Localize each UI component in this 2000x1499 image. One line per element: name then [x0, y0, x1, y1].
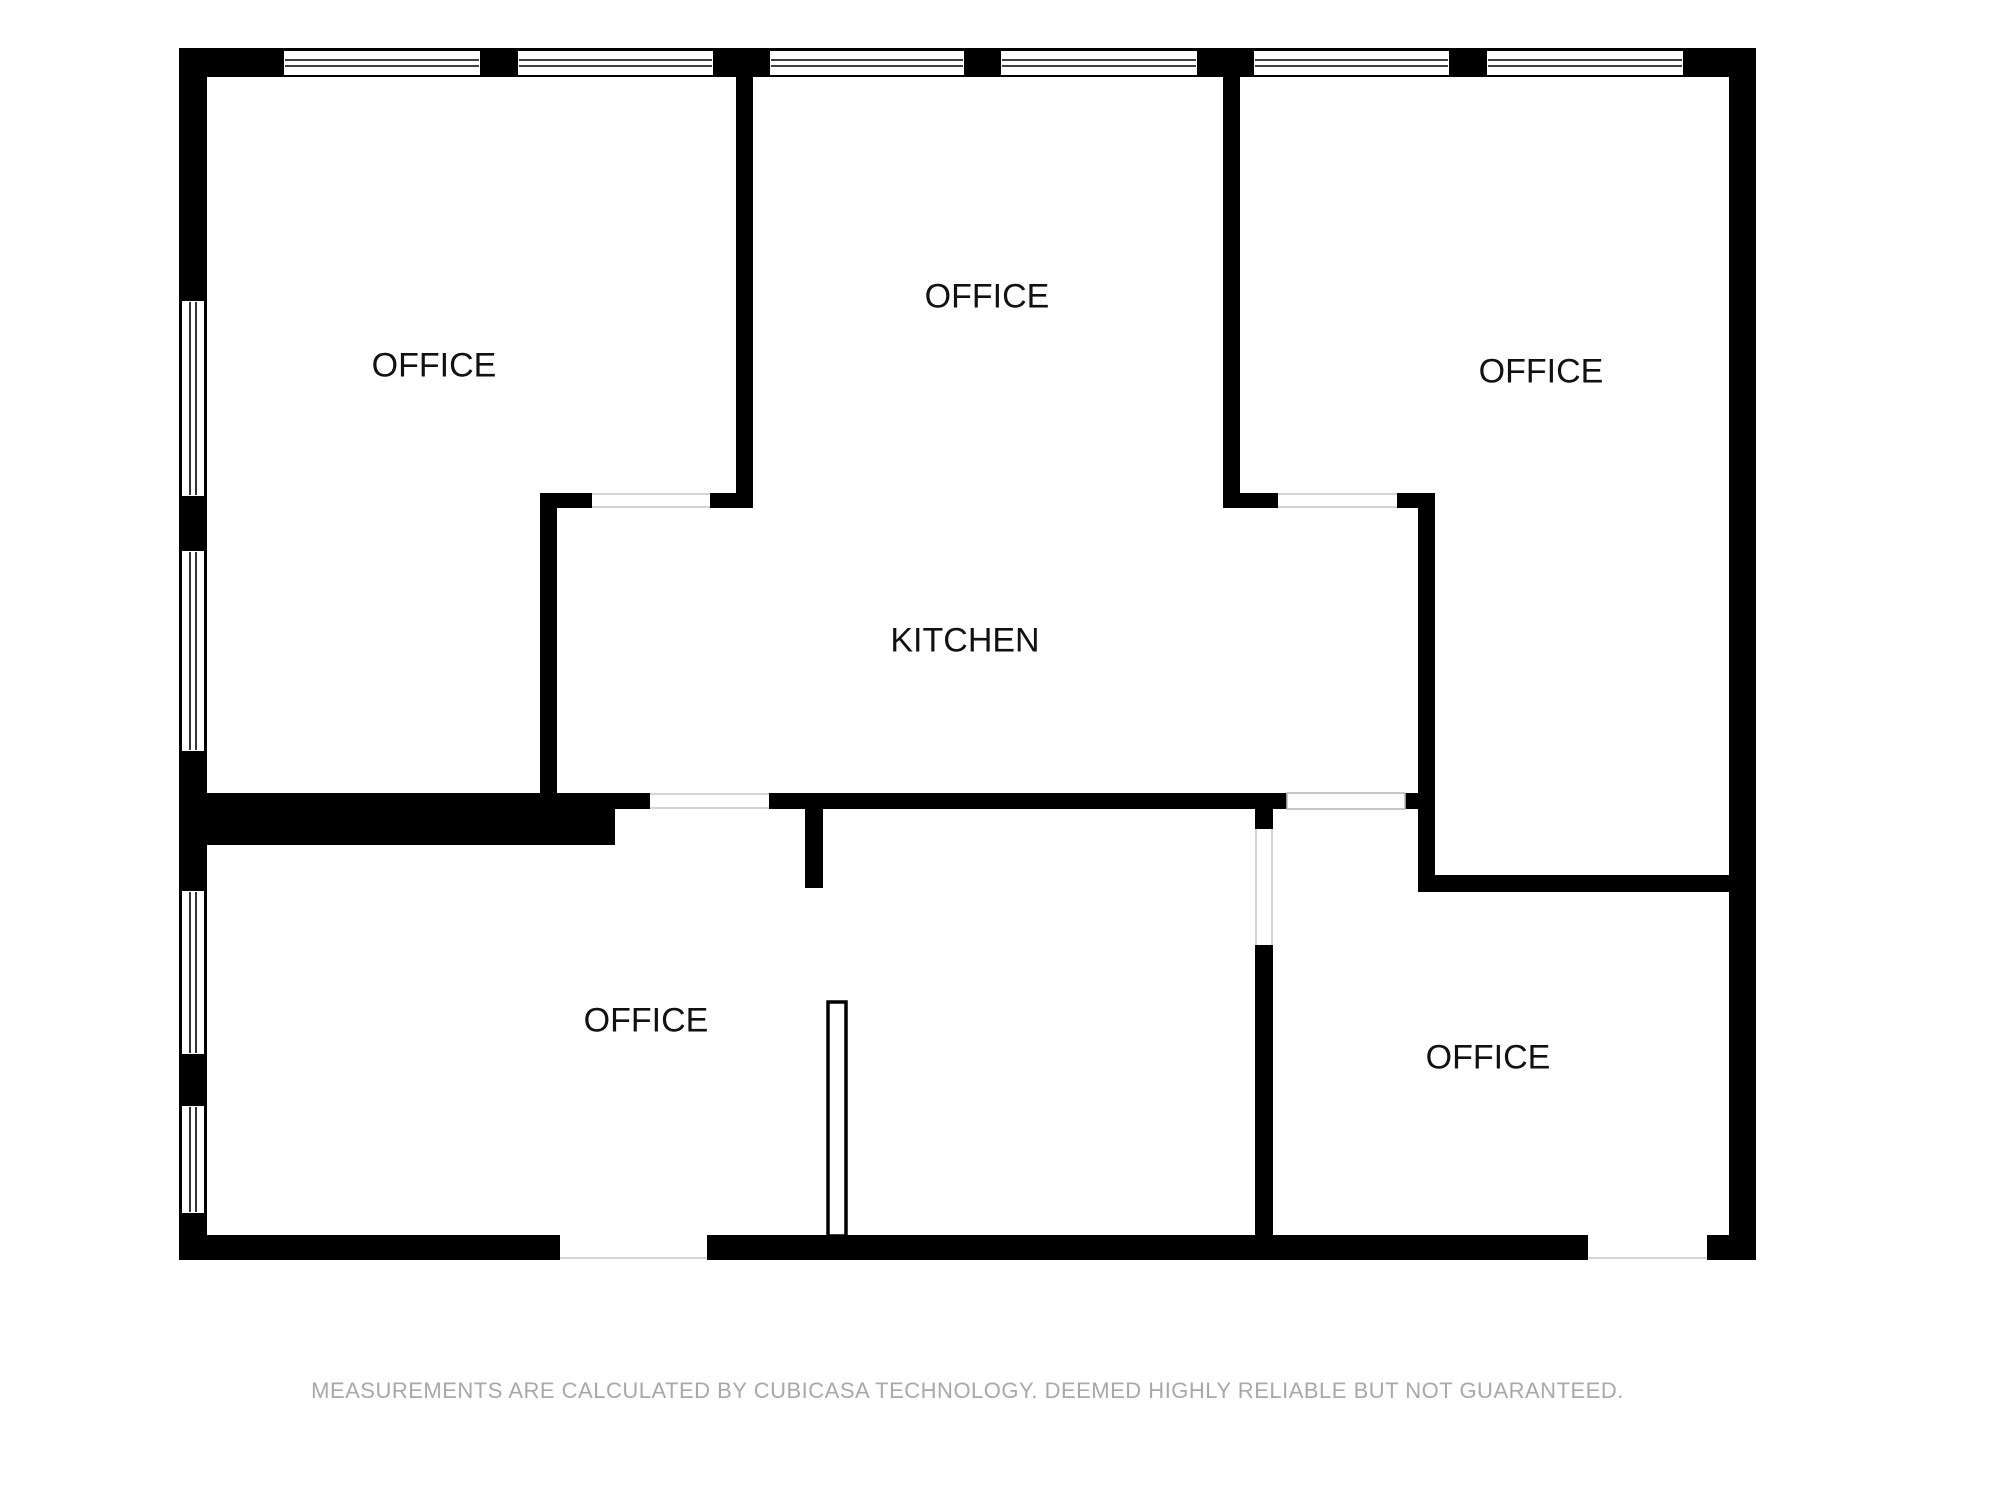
room-label-office-bottom-right: OFFICE	[1426, 1039, 1551, 1078]
window-icon	[283, 50, 481, 76]
wall-divider-office2-office3	[1223, 77, 1240, 508]
interior-window-icon	[1287, 793, 1405, 809]
wall-kitchen-right	[1418, 493, 1435, 892]
room-label-office-top-left: OFFICE	[372, 347, 497, 386]
room-label-office-bottom-left: OFFICE	[584, 1002, 709, 1041]
room-label-office-top-middle: OFFICE	[925, 278, 1050, 317]
door-opening-icon	[592, 493, 710, 508]
window-icon	[181, 300, 205, 497]
window-icon	[181, 1105, 205, 1214]
door-opening-icon	[1278, 493, 1397, 508]
wall-kitchen-bottom-corner	[1405, 793, 1435, 809]
wall-bottom	[179, 1235, 1756, 1260]
disclaimer-text: MEASUREMENTS ARE CALCULATED BY CUBICASA …	[179, 1378, 1756, 1404]
wall-thick-band-left	[179, 793, 615, 845]
wall-divider-office4-office5-stub	[1255, 809, 1273, 829]
wall-kitchen-top-left-b	[710, 493, 753, 508]
door-opening-icon	[1588, 1235, 1707, 1260]
window-icon	[181, 550, 205, 752]
room-label-office-top-right: OFFICE	[1479, 353, 1604, 392]
window-icon	[1486, 50, 1684, 76]
window-icon	[769, 50, 965, 76]
wall-stub-middle	[805, 809, 823, 888]
wall-divider-office4-office5	[1255, 945, 1273, 1236]
door-opening-icon	[560, 1235, 707, 1260]
floorplan-page: OFFICE OFFICE OFFICE KITCHEN OFFICE OFFI…	[0, 0, 2000, 1499]
window-icon	[1000, 50, 1198, 76]
floorplan-drawing	[0, 0, 2000, 1499]
room-label-kitchen: KITCHEN	[890, 622, 1039, 661]
wall-office3-bottom	[1418, 875, 1729, 892]
window-icon	[181, 890, 205, 1055]
wall-divider-office1-office2	[736, 77, 753, 508]
wall-kitchen-bottom	[769, 793, 1287, 809]
door-opening-icon	[650, 793, 769, 809]
wall-thick-band-ext	[615, 793, 650, 809]
window-icon	[517, 50, 714, 76]
wall-right	[1729, 48, 1756, 1259]
wall-kitchen-left	[540, 493, 557, 795]
door-opening-icon	[1256, 829, 1272, 945]
window-icon	[1253, 50, 1450, 76]
wall-kitchen-top-right-a	[1223, 493, 1278, 508]
door-leaf-icon	[828, 1002, 846, 1236]
